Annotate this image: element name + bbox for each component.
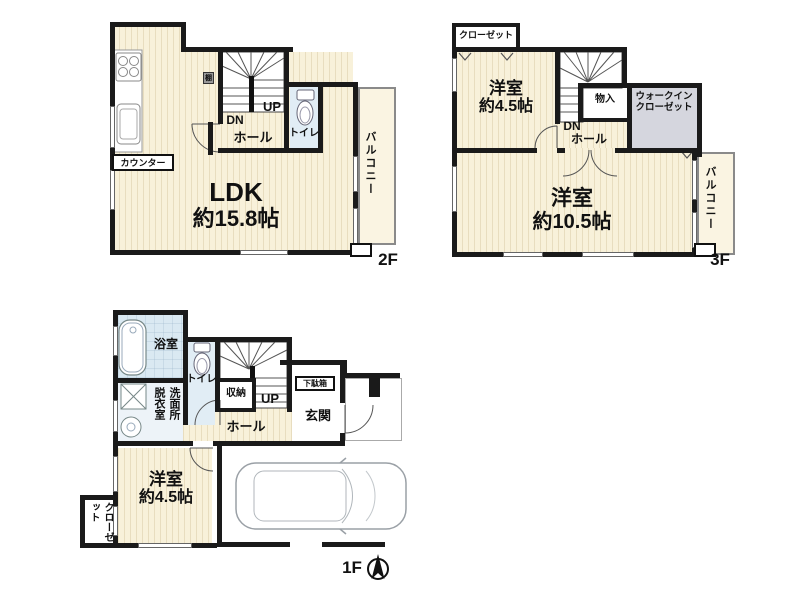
- window-mark: [503, 252, 543, 257]
- toilet-icon-2f: [297, 90, 314, 125]
- label-storage-3f: 物入: [583, 93, 627, 107]
- wall: [578, 83, 702, 88]
- window-mark: [110, 106, 115, 148]
- ldk-size: 約15.8帖: [193, 207, 280, 232]
- wall: [578, 118, 632, 122]
- compass-icon: [368, 554, 388, 579]
- door-arc-entrance: [345, 405, 373, 433]
- wall: [183, 337, 292, 342]
- room-small-name: 洋室: [489, 79, 523, 98]
- label-closet-1f: クローゼット: [87, 502, 114, 542]
- wall: [218, 148, 323, 153]
- kitchen-counter-icon: [114, 50, 142, 152]
- floor-label-2f: 2F: [366, 250, 410, 270]
- window-mark: [113, 326, 118, 356]
- label-up-2f: UP: [256, 100, 288, 114]
- wall: [222, 542, 290, 547]
- wall: [110, 250, 358, 255]
- bathtub-icon: [119, 320, 146, 375]
- room-large-name: 洋室: [551, 187, 593, 211]
- washing-machine-icon: [121, 384, 146, 409]
- door-arc-room-small-3f: [535, 126, 557, 148]
- wall: [208, 122, 213, 155]
- room-large-size: 約10.5帖: [533, 211, 612, 233]
- label-toilet-1f: トイレ: [186, 373, 217, 386]
- wall: [452, 148, 537, 153]
- wall: [622, 47, 627, 88]
- label-storage-1f: 収納: [220, 387, 252, 401]
- wall: [557, 148, 565, 153]
- room-1f-size: 約4.5帖: [139, 489, 193, 507]
- window-mark: [692, 160, 697, 200]
- label-hall-2f: ホール: [220, 130, 286, 147]
- wall: [217, 408, 256, 412]
- label-room-1f: 洋室 約4.5帖: [118, 462, 214, 514]
- wall: [113, 441, 193, 446]
- label-entrance: 玄関: [297, 407, 339, 425]
- room-1f-name: 洋室: [149, 470, 183, 489]
- label-washroom: 洗面所 脱衣室: [145, 387, 181, 437]
- shoebox-label: 下駄箱: [303, 378, 327, 389]
- window-mark: [138, 543, 192, 548]
- label-closet-3f: クローゼット: [452, 29, 520, 42]
- wall: [183, 310, 188, 425]
- door-arc-2f: [192, 124, 220, 152]
- counter-label: カウンター: [120, 156, 165, 169]
- floor-label-3f: 3F: [698, 250, 742, 270]
- wall: [181, 47, 293, 52]
- label-hall-3f: ホール: [558, 132, 620, 148]
- wall: [452, 252, 697, 257]
- wall: [218, 47, 223, 124]
- wall: [287, 337, 292, 412]
- wall: [615, 148, 702, 153]
- window-mark: [582, 252, 634, 257]
- wall: [217, 443, 222, 547]
- shelf-box: 棚: [203, 72, 214, 84]
- wall: [217, 378, 256, 382]
- label-up-1f: UP: [254, 392, 286, 407]
- wall: [113, 378, 183, 383]
- label-hall-1f: ホール: [213, 419, 279, 436]
- label-room-large-3f: 洋室 約10.5帖: [470, 182, 674, 238]
- ldk-name: LDK: [209, 178, 262, 207]
- label-dn-2f: DN: [220, 114, 250, 128]
- window-mark: [353, 156, 358, 192]
- label-balcony-3f: バルコニー: [700, 166, 718, 246]
- window-mark: [240, 250, 288, 255]
- washroom-col-right: 洗面所: [166, 387, 181, 437]
- floor-label-1f: 1F: [338, 557, 366, 579]
- floorplan-canvas: カウンター 棚 下駄箱 DN UP ホール トイレ LDK 約15.8帖 バルコ…: [0, 0, 800, 600]
- wall: [452, 47, 627, 52]
- room-small-size: 約4.5帖: [479, 98, 533, 116]
- wall: [110, 22, 186, 27]
- wall: [280, 360, 347, 365]
- label-walkin-closet: ウォークイン クローゼット: [629, 90, 699, 116]
- counter-box: カウンター: [112, 154, 174, 171]
- label-toilet-2f: トイレ: [288, 127, 320, 140]
- wall: [369, 378, 380, 397]
- wash-basin-icon: [121, 417, 141, 437]
- wall: [340, 365, 345, 403]
- wall: [452, 23, 520, 27]
- shelf-label: 棚: [205, 73, 212, 83]
- window-mark: [110, 170, 115, 210]
- double-door-arc-3f: [563, 150, 617, 176]
- window-mark: [113, 400, 118, 432]
- wall: [217, 441, 345, 446]
- shoebox: 下駄箱: [295, 376, 335, 391]
- label-ldk: LDK 約15.8帖: [160, 176, 312, 234]
- label-room-small-3f: 洋室 約4.5帖: [455, 74, 557, 120]
- label-bath: 浴室: [147, 337, 185, 352]
- wall: [113, 310, 188, 315]
- label-balcony-2f: バルコニー: [360, 131, 378, 213]
- washroom-col-left: 脱衣室: [151, 387, 166, 437]
- window-mark: [452, 166, 457, 212]
- car-icon: [236, 458, 406, 534]
- toilet-icon-1f: [194, 343, 210, 375]
- wall: [322, 542, 385, 547]
- wic-line2: クローゼット: [635, 103, 692, 114]
- wall: [80, 495, 85, 548]
